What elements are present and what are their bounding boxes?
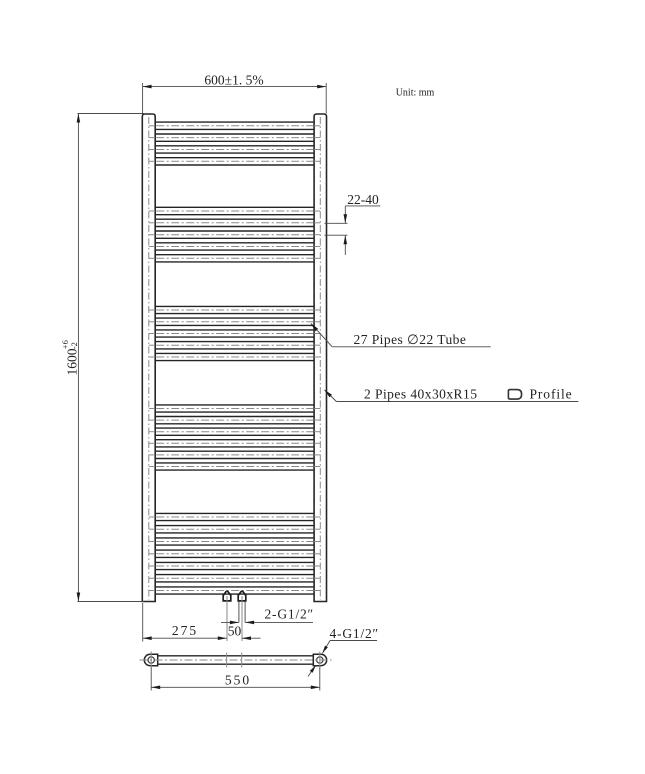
svg-text:-2: -2: [69, 342, 79, 349]
svg-text:Unit: mm: Unit: mm: [396, 88, 435, 99]
svg-text:22-40: 22-40: [347, 192, 379, 207]
svg-text:Profile: Profile: [530, 387, 573, 402]
svg-text:27 Pipes ∅22 Tube: 27 Pipes ∅22 Tube: [354, 332, 467, 347]
svg-text:550: 550: [225, 673, 251, 688]
svg-text:2 Pipes 40x30xR15: 2 Pipes 40x30xR15: [364, 387, 477, 402]
svg-text:275: 275: [172, 623, 198, 638]
svg-text:1600: 1600: [65, 348, 80, 375]
svg-text:2-G1/2″: 2-G1/2″: [265, 607, 314, 622]
svg-text:600±1. 5%: 600±1. 5%: [204, 73, 263, 88]
svg-text:4-G1/2″: 4-G1/2″: [330, 626, 379, 641]
svg-text:50: 50: [228, 624, 242, 639]
